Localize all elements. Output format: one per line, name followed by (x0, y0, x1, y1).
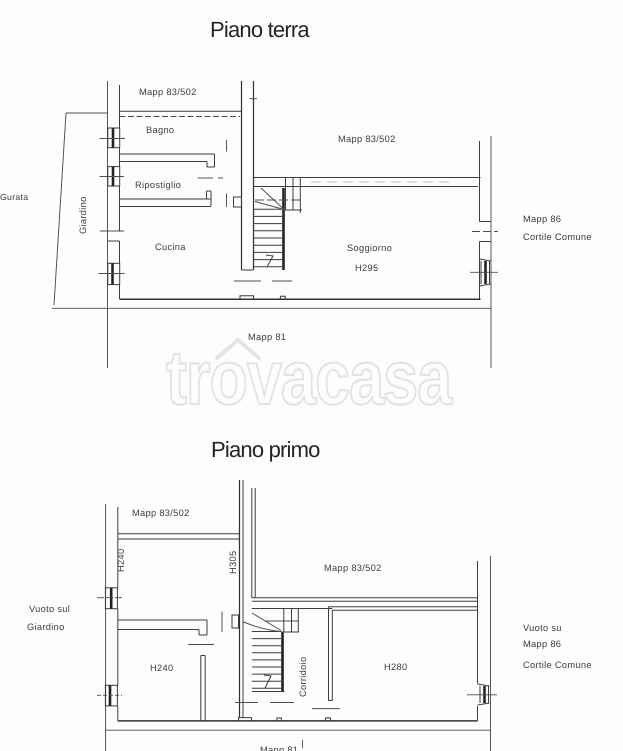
svg-text:H305: H305 (228, 551, 238, 574)
svg-text:Cortile Comune: Cortile Comune (523, 660, 592, 670)
svg-text:Giardino: Giardino (78, 196, 88, 234)
svg-text:Mapp 83/502: Mapp 83/502 (139, 87, 197, 97)
svg-text:H240: H240 (116, 549, 126, 572)
svg-text:Mapp 86: Mapp 86 (523, 639, 561, 649)
svg-text:Mapp 86: Mapp 86 (523, 214, 561, 224)
svg-text:Mapp 83/502: Mapp 83/502 (132, 508, 190, 518)
svg-text:Mapp 83/502: Mapp 83/502 (324, 563, 382, 573)
svg-text:H240: H240 (150, 663, 173, 673)
svg-text:Mapp 81: Mapp 81 (260, 745, 298, 751)
svg-text:Piano terra: Piano terra (210, 17, 310, 42)
svg-text:Ripostiglio: Ripostiglio (135, 180, 181, 190)
svg-text:Cucina: Cucina (155, 242, 186, 252)
svg-text:Vuoto su: Vuoto su (523, 623, 562, 633)
svg-text:Giardino: Giardino (27, 622, 65, 632)
svg-text:Bagno: Bagno (146, 125, 174, 135)
svg-text:trovacasa: trovacasa (166, 336, 453, 421)
svg-text:Vuoto sul: Vuoto sul (29, 604, 70, 614)
svg-text:Soggiorno: Soggiorno (347, 243, 392, 253)
svg-text:Corridoio: Corridoio (298, 657, 308, 697)
svg-text:Mapp 81: Mapp 81 (248, 332, 286, 342)
svg-text:Gurata: Gurata (0, 192, 28, 202)
svg-text:Cortile Comune: Cortile Comune (523, 232, 592, 242)
svg-text:Piano primo: Piano primo (211, 437, 320, 462)
svg-text:H280: H280 (384, 662, 407, 672)
svg-text:Mapp 83/502: Mapp 83/502 (338, 134, 396, 144)
svg-text:H295: H295 (355, 263, 378, 273)
